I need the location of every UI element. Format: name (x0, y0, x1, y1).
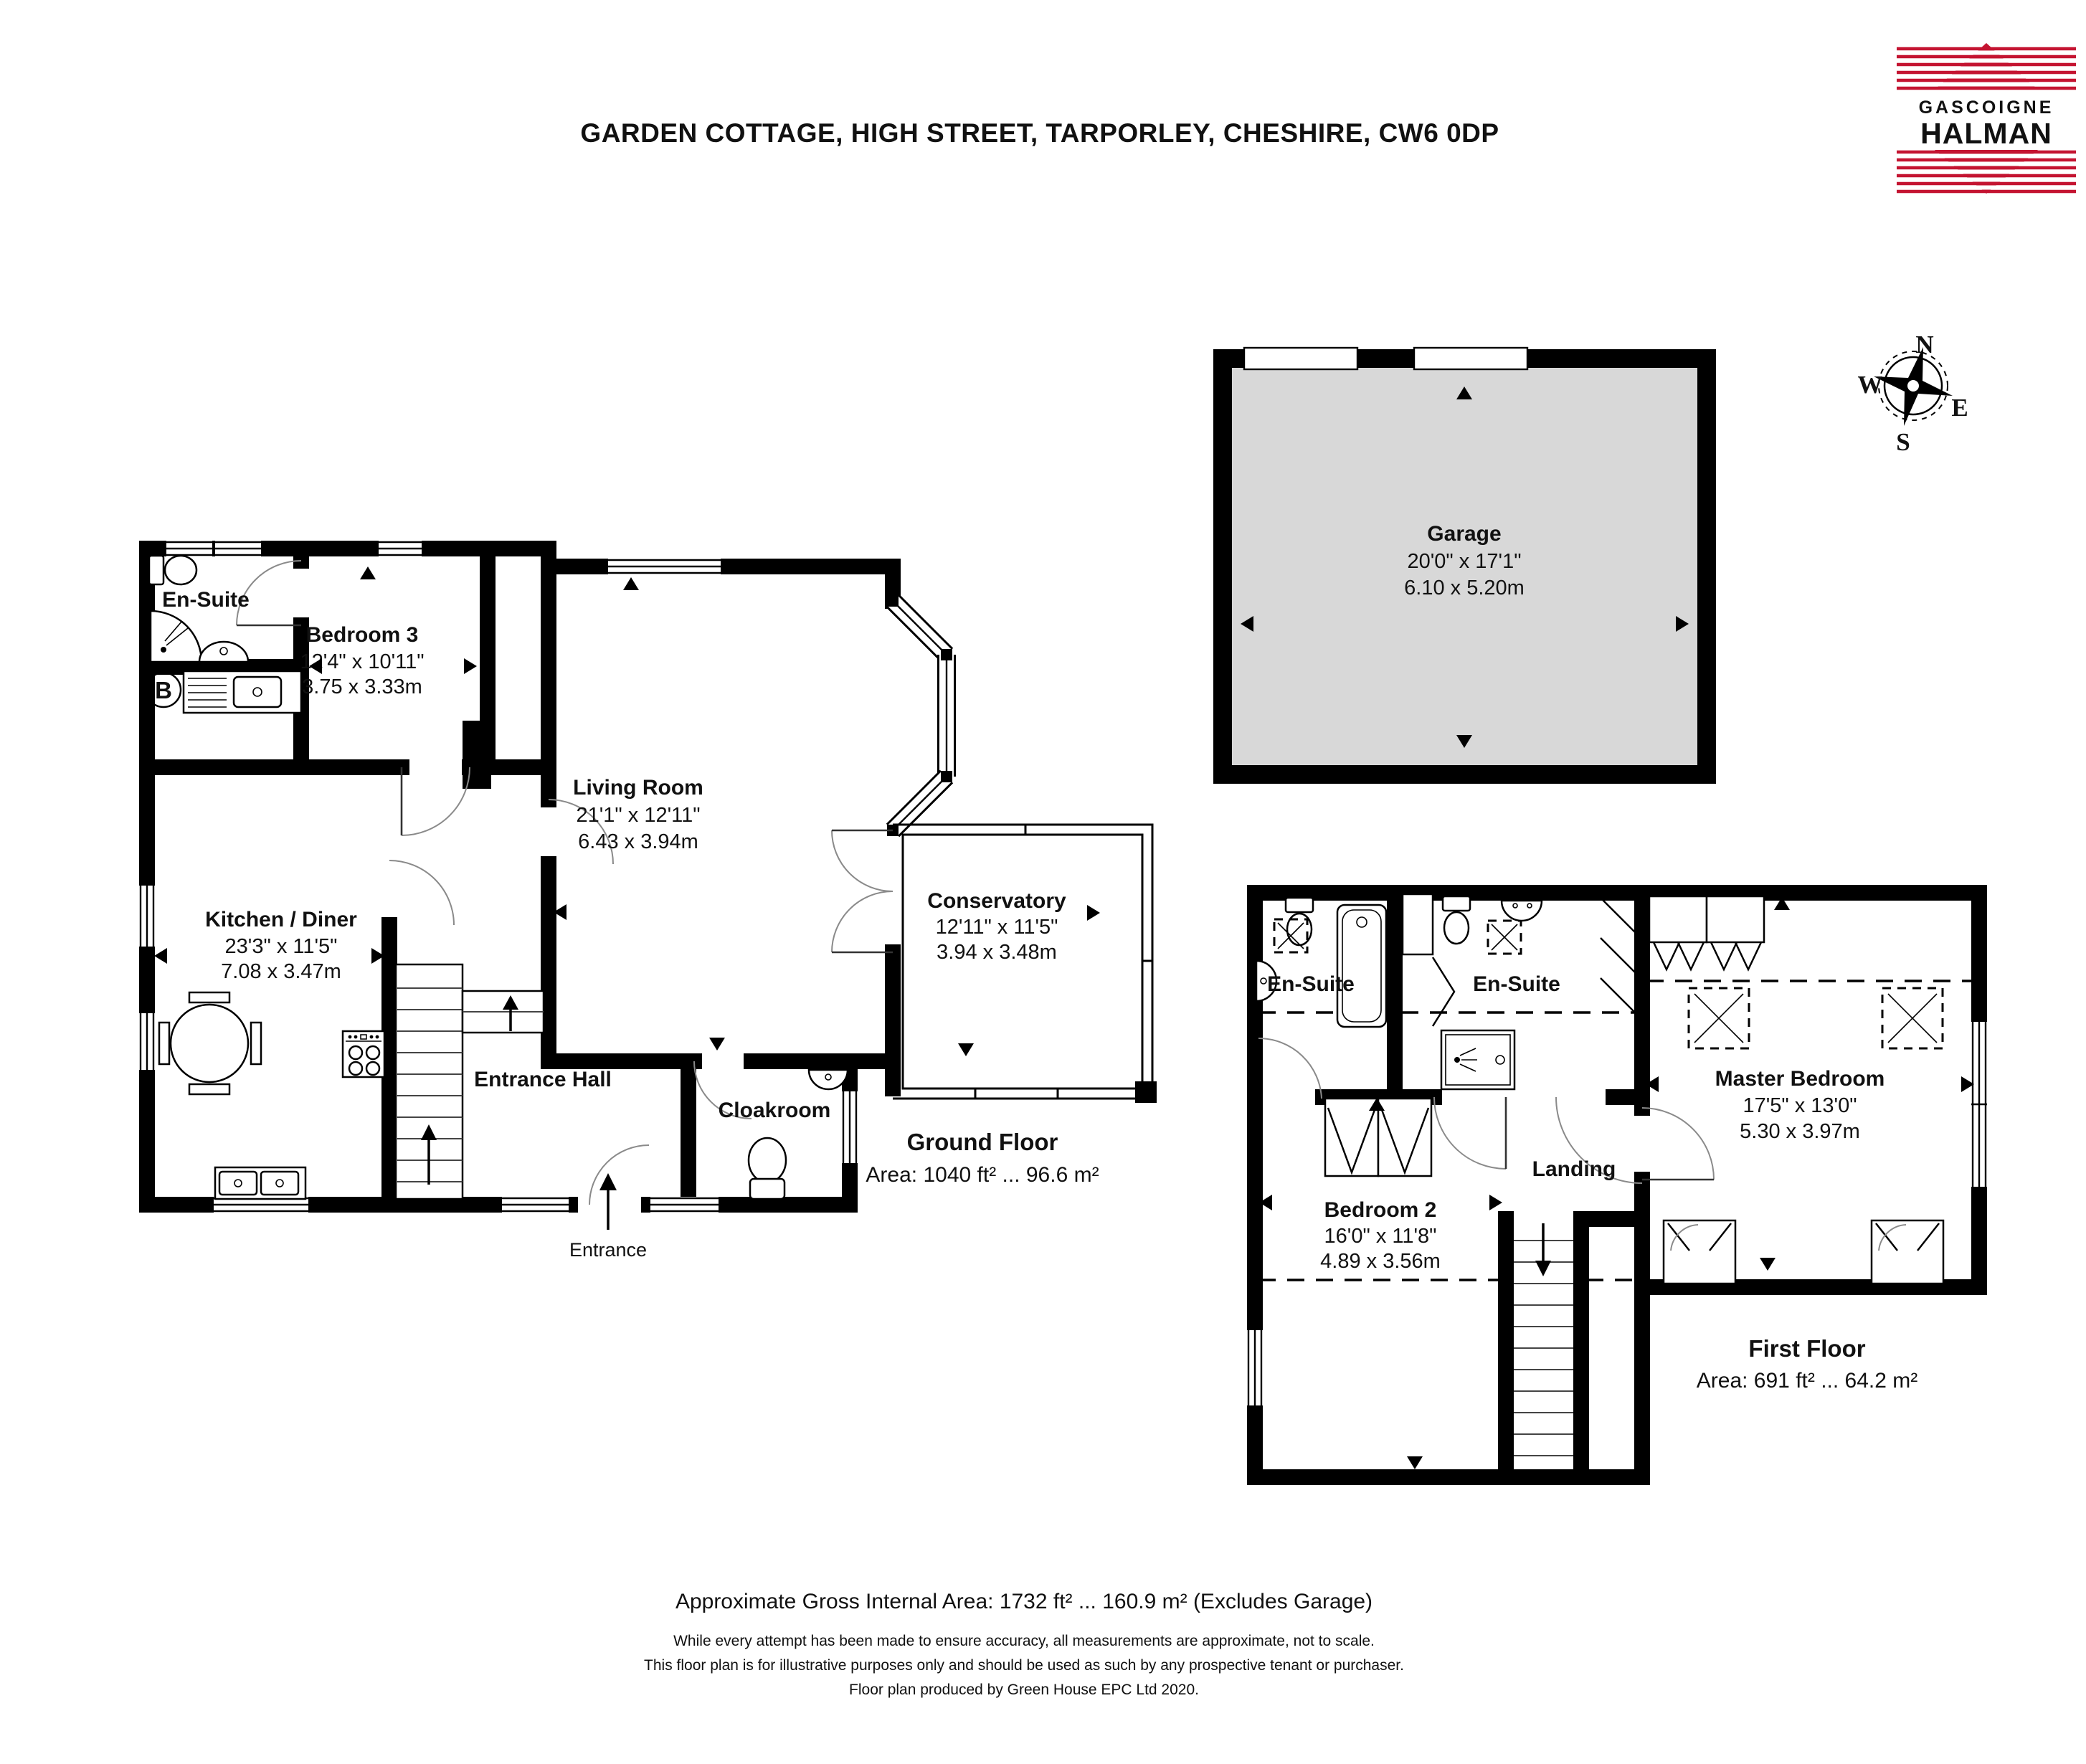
dim-bedroom2-imp: 16'0" x 11'8" (1324, 1225, 1437, 1248)
dim-living-met: 6.43 x 3.94m (578, 830, 698, 853)
first-stairs (1514, 1223, 1573, 1456)
window (139, 1013, 155, 1070)
window (1971, 1022, 1987, 1187)
bath-icon (1337, 905, 1386, 1027)
disclaimer-line-2: This floor plan is for illustrative purp… (644, 1657, 1404, 1674)
label-ensuite1: En-Suite (1267, 972, 1355, 996)
shower-enclosure-icon (1441, 1030, 1514, 1089)
skylight-icon (1882, 988, 1943, 1048)
label-ensuite2: En-Suite (1473, 972, 1560, 996)
logo-text-gascoigne: GASCOIGNE (1919, 98, 2054, 118)
dormer-window-recess (1664, 1220, 1943, 1284)
skylight-icon (1488, 921, 1521, 954)
master-fixtures (1649, 896, 1943, 1048)
dim-garage-met: 6.10 x 5.20m (1404, 577, 1525, 599)
label-kitchen: Kitchen / Diner (205, 908, 357, 931)
window (650, 1197, 719, 1213)
window (608, 559, 721, 574)
label-living: Living Room (573, 776, 703, 800)
floorplan-page: GARDEN COTTAGE, HIGH STREET, TARPORLEY, … (0, 0, 2086, 1764)
kitchen-fixtures (159, 992, 384, 1199)
label-entrance: Entrance (569, 1239, 647, 1261)
disclaimer-line-3: Floor plan produced by Green House EPC L… (849, 1682, 1199, 1698)
boiler-area: B (146, 671, 301, 713)
basin-icon (199, 642, 248, 662)
dim-master-imp: 17'5" x 13'0" (1743, 1094, 1857, 1117)
chair-icon (251, 1023, 261, 1064)
cloakroom-fixtures (749, 1070, 848, 1199)
to (149, 556, 163, 584)
dim-bedroom2-met: 4.89 x 3.56m (1320, 1250, 1441, 1273)
entrance-marker: Entrance (569, 1173, 647, 1261)
logo-stripes-top-icon (1897, 43, 2076, 90)
toilet-icon (1444, 912, 1469, 944)
wardrobe-icon (1649, 896, 1707, 969)
chimney-breast (463, 721, 491, 789)
first-floor-title: First Floor (1748, 1335, 1865, 1362)
ensuite1-fixtures (1256, 898, 1386, 1027)
window (215, 541, 261, 556)
chair-icon (189, 992, 229, 1002)
dim-conservatory-met: 3.94 x 3.48m (937, 941, 1057, 964)
dim-bedroom3-met: 3.75 x 3.33m (302, 675, 422, 698)
ground-floor-title: Ground Floor (907, 1129, 1058, 1155)
compass-e: E (1951, 394, 1968, 422)
first-floor-plan: En-Suite En-Suite Master Bedroom 17'5" x… (1247, 893, 1987, 1477)
label-master: Master Bedroom (1715, 1067, 1885, 1091)
window (379, 541, 422, 556)
compass-rose-icon: N W E S (1858, 331, 1968, 456)
first-floor-area: Area: 691 ft² ... 64.2 m² (1697, 1369, 1917, 1393)
window (502, 1197, 569, 1213)
sink-drainer-icon (184, 671, 301, 713)
dim-living-imp: 21'1" x 12'11" (576, 804, 700, 827)
label-bedroom2: Bedroom 2 (1324, 1198, 1437, 1222)
basin-icon (1502, 901, 1542, 921)
double-sink-icon (215, 1167, 305, 1199)
hob-oven-icon (343, 1031, 384, 1077)
label-garage: Garage (1427, 522, 1501, 546)
chair-icon (189, 1084, 229, 1094)
chair-icon (159, 1023, 169, 1064)
shower-icon (151, 611, 202, 662)
gascoigne-halman-logo: GASCOIGNE HALMAN (1897, 43, 2076, 194)
window (139, 886, 155, 947)
label-landing: Landing (1532, 1157, 1616, 1181)
dim-kitchen-met: 7.08 x 3.47m (221, 960, 341, 983)
ground-floor-area: Area: 1040 ft² ... 96.6 m² (866, 1163, 1099, 1187)
conservatory-glazing (893, 825, 1157, 1103)
label-cloakroom: Cloakroom (719, 1099, 831, 1122)
dim-master-met: 5.30 x 3.97m (1740, 1120, 1860, 1143)
dim-conservatory-imp: 12'11" x 11'5" (936, 916, 1058, 939)
toilet-icon (165, 556, 196, 584)
ground-floor-plan: B (139, 541, 1157, 1261)
bay-window (887, 595, 952, 836)
window (166, 541, 212, 556)
dining-table-icon (171, 1005, 248, 1082)
footer: Approximate Gross Internal Area: 1732 ft… (644, 1590, 1404, 1698)
skylight-icon (1689, 988, 1749, 1048)
wardrobe-icon (1707, 896, 1764, 969)
label-entrance-hall: Entrance Hall (474, 1068, 612, 1091)
window (1247, 1330, 1263, 1405)
window (842, 1091, 858, 1163)
label-ensuite-g: En-Suite (162, 588, 250, 612)
gross-internal-area: Approximate Gross Internal Area: 1732 ft… (675, 1590, 1373, 1613)
logo-stripes-bottom-icon (1897, 150, 2076, 194)
compass-n: N (1915, 331, 1933, 359)
dim-garage-imp: 20'0" x 17'1" (1407, 550, 1521, 573)
compass-w: W (1858, 371, 1883, 399)
page-title: GARDEN COTTAGE, HIGH STREET, TARPORLEY, … (580, 118, 1499, 148)
dim-kitchen-imp: 23'3" x 11'5" (225, 935, 338, 958)
floorplan-canvas: GARDEN COTTAGE, HIGH STREET, TARPORLEY, … (0, 0, 2086, 1764)
garage-plan: Garage 20'0" x 17'1" 6.10 x 5.20m (1223, 348, 1707, 774)
label-conservatory: Conservatory (927, 889, 1066, 913)
cupboard-icon (1403, 894, 1433, 954)
logo-text-halman: HALMAN (1920, 117, 2052, 150)
compass-s: S (1896, 428, 1910, 456)
disclaimer-line-1: While every attempt has been made to ens… (673, 1633, 1375, 1649)
boiler-label: B (155, 677, 172, 703)
toilet-icon (749, 1138, 786, 1182)
label-bedroom3: Bedroom 3 (306, 623, 419, 647)
